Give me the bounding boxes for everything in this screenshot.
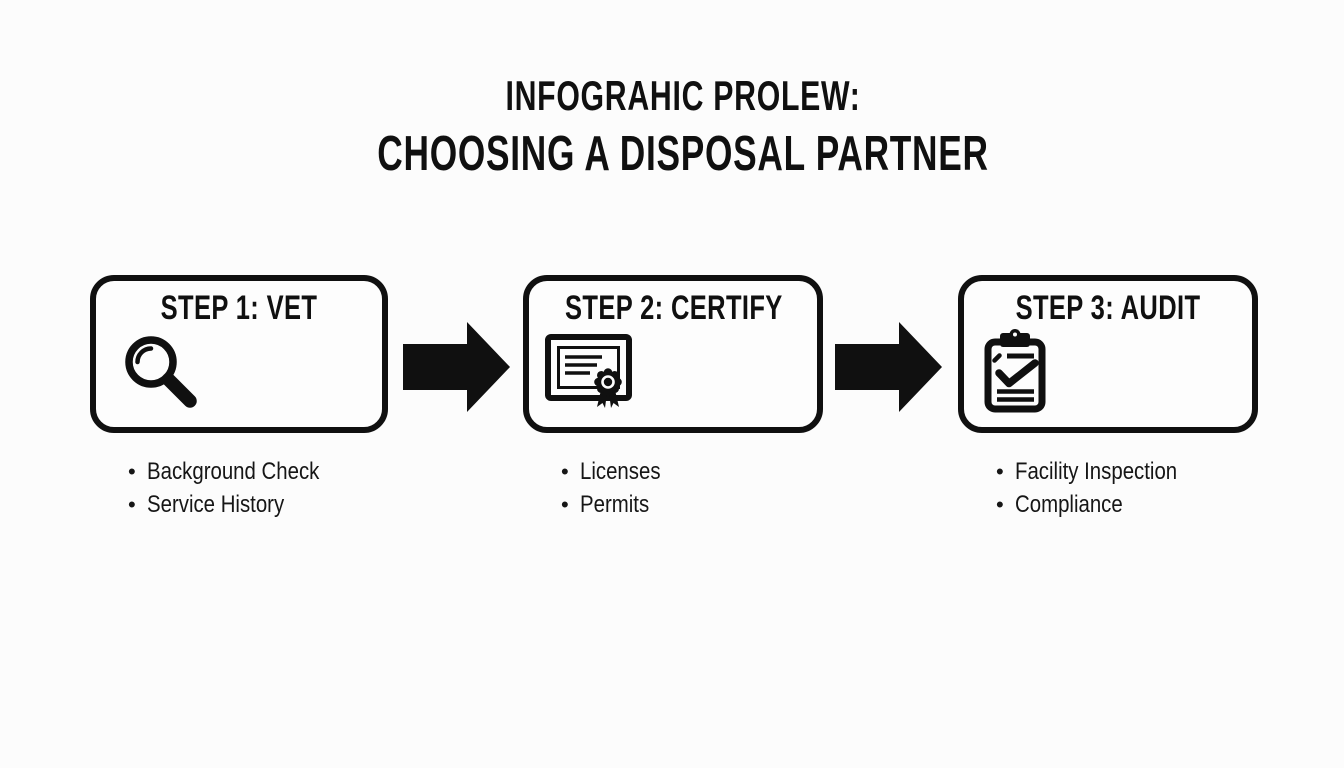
bullet-item: • Compliance [996, 488, 1258, 521]
bullet-item: • Permits [561, 488, 823, 521]
step-2-title: STEP 2: CERTIFY [565, 289, 781, 327]
bullet-marker: • [996, 455, 1015, 488]
bullet-label: Service History [147, 488, 284, 521]
step-3-title: STEP 3: AUDIT [1000, 289, 1216, 327]
step-3: STEP 3: AUDIT • Facility Inspection [958, 275, 1258, 521]
step-1-bullets: • Background Check • Service History [90, 455, 388, 521]
clipboard-check-icon [984, 329, 1046, 413]
bullet-item: • Service History [128, 488, 388, 521]
bullet-marker: • [128, 488, 147, 521]
title-line-2: CHOOSING A DISPOSAL PARTNER [199, 128, 1167, 180]
arrow-right-icon [403, 322, 510, 412]
step-3-bullets: • Facility Inspection • Compliance [958, 455, 1258, 521]
bullet-label: Licenses [580, 455, 661, 488]
title-line-1: INFOGRAHIC PROLEW: [199, 74, 1167, 118]
magnifier-search-icon [124, 335, 204, 415]
bullet-item: • Background Check [128, 455, 388, 488]
step-2: STEP 2: CERTIFY [523, 275, 823, 521]
bullet-label: Permits [580, 488, 649, 521]
bullet-marker: • [561, 455, 580, 488]
bullet-label: Facility Inspection [1015, 455, 1177, 488]
step-1-box: STEP 1: VET [90, 275, 388, 433]
step-1-title: STEP 1: VET [132, 289, 347, 327]
bullet-item: • Facility Inspection [996, 455, 1258, 488]
page-title: INFOGRAHIC PROLEW: CHOOSING A DISPOSAL P… [11, 74, 1344, 180]
infographic: INFOGRAHIC PROLEW: CHOOSING A DISPOSAL P… [0, 0, 1344, 768]
step-3-box: STEP 3: AUDIT [958, 275, 1258, 433]
bullet-marker: • [561, 488, 580, 521]
arrow-right-icon [835, 322, 942, 412]
step-2-box: STEP 2: CERTIFY [523, 275, 823, 433]
certificate-ribbon-icon [545, 334, 633, 412]
step-2-bullets: • Licenses • Permits [523, 455, 823, 521]
bullet-label: Compliance [1015, 488, 1123, 521]
bullet-marker: • [128, 455, 147, 488]
bullet-label: Background Check [147, 455, 319, 488]
bullet-item: • Licenses [561, 455, 823, 488]
step-1: STEP 1: VET • Background Check • Service… [90, 275, 388, 521]
bullet-marker: • [996, 488, 1015, 521]
